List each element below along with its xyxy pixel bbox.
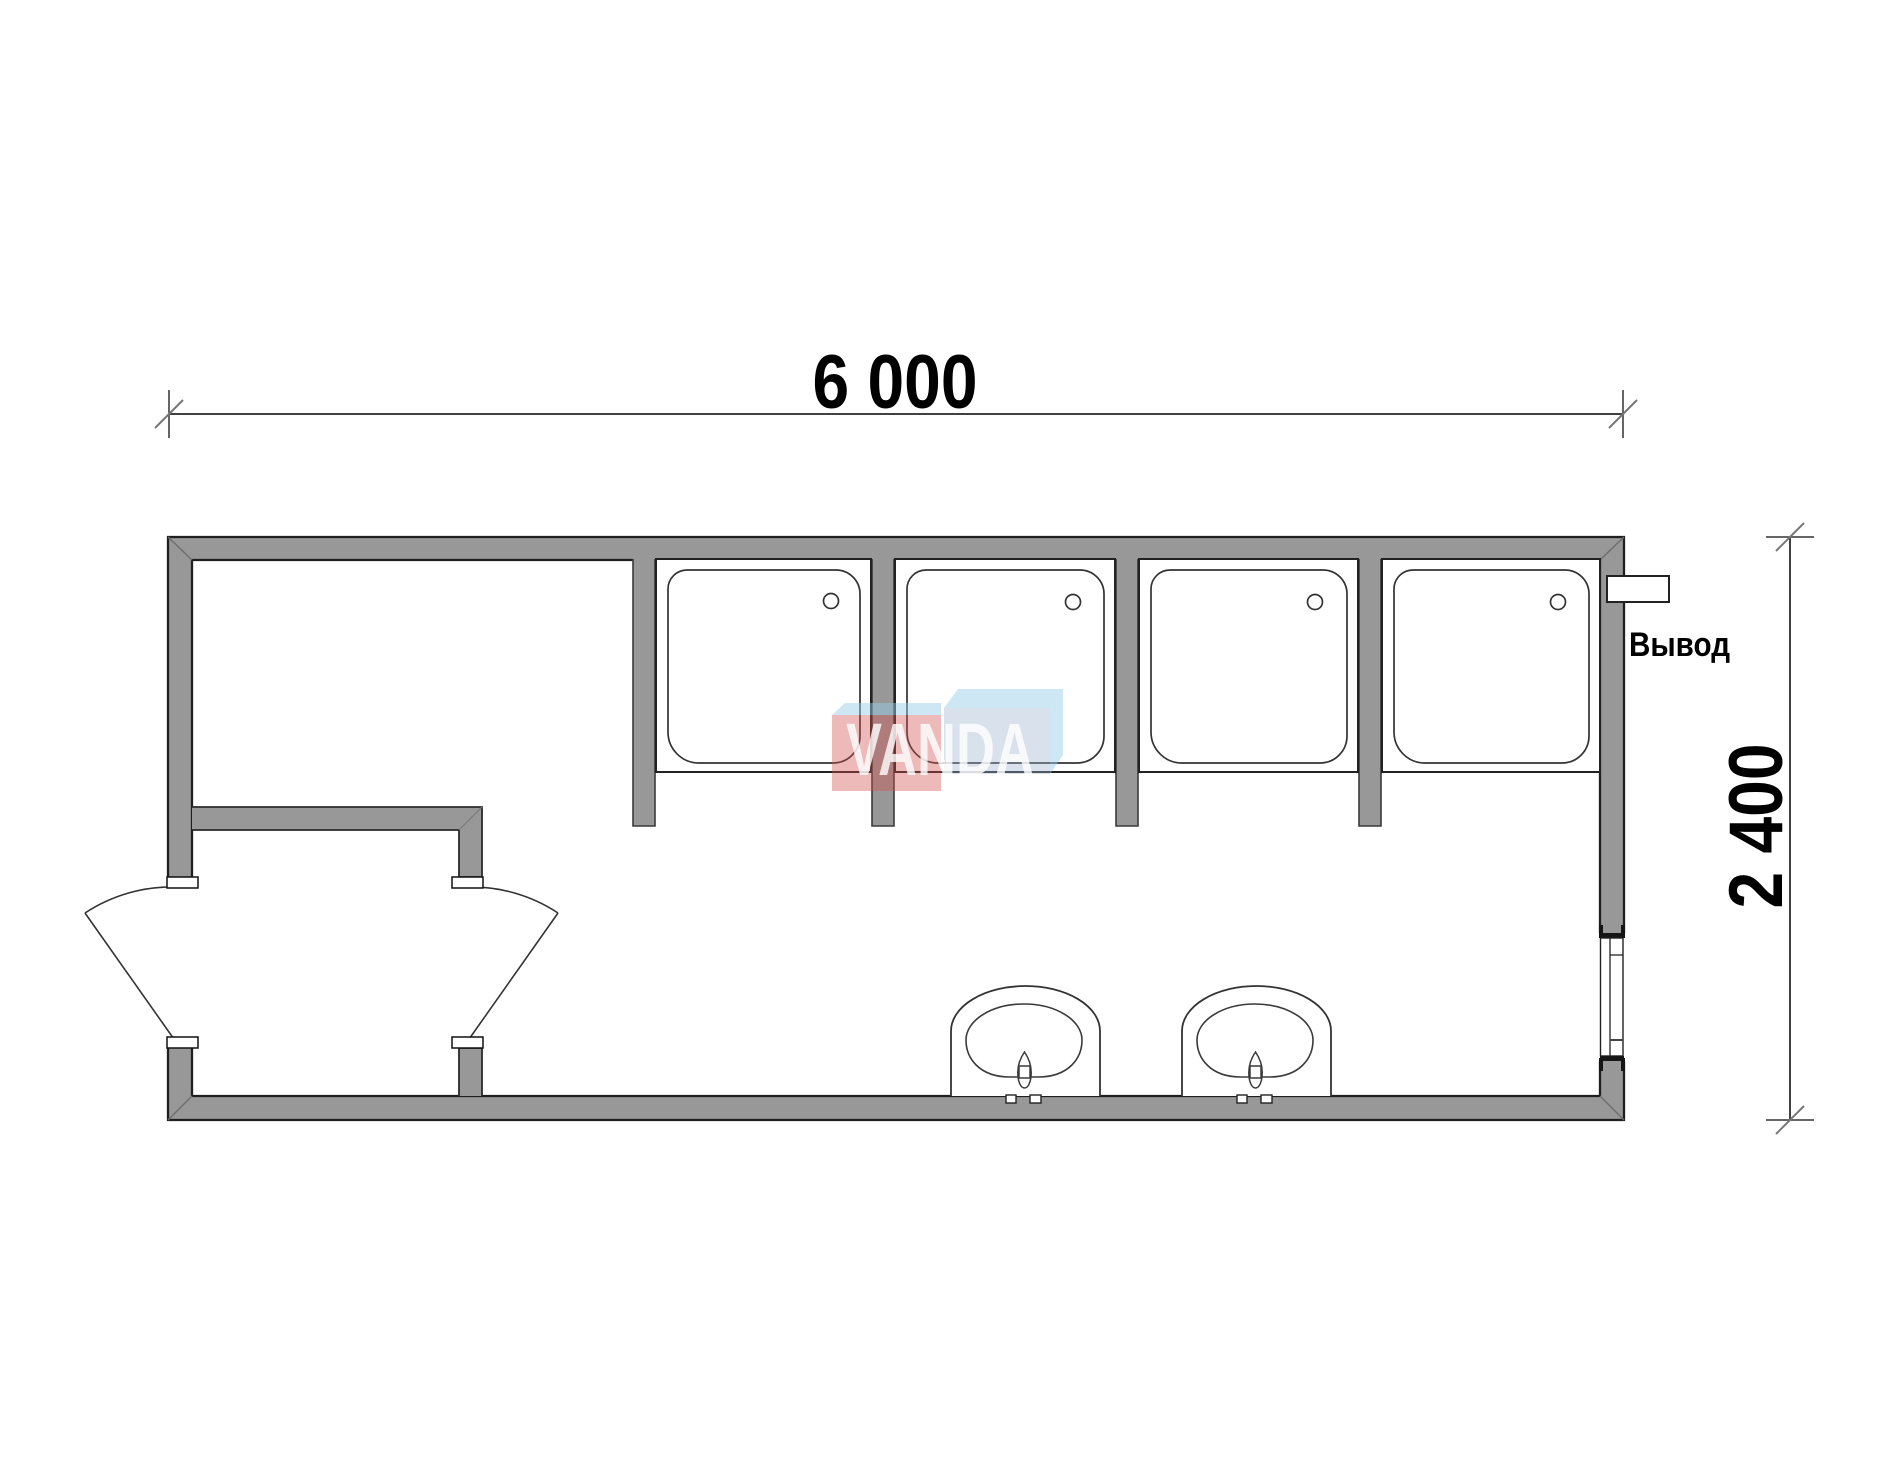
- svg-text:2 400: 2 400: [1714, 744, 1799, 909]
- svg-text:VANDA: VANDA: [846, 708, 1034, 791]
- svg-text:Вывод: Вывод: [1629, 626, 1730, 664]
- svg-text:6 000: 6 000: [813, 340, 978, 425]
